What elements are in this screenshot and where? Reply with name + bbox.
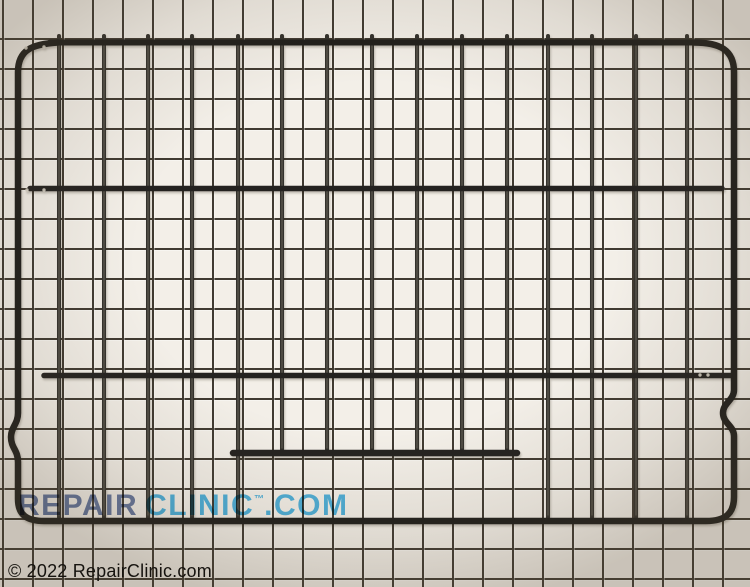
watermark-clinic-text: CLINIC [145,489,254,522]
rack-rivets [24,45,709,376]
watermark-com-text: .COM [264,489,348,522]
rack-crossbars [30,43,733,454]
watermark-repair-text: REPAIR [18,489,138,522]
product-photo: REPAIRCLINIC™.COM © 2022 RepairClinic.co… [0,0,750,587]
rack-wires [59,36,687,519]
watermark-trademark-symbol: ™ [254,494,264,505]
copyright-text: © 2022 RepairClinic.com [8,561,212,582]
repairclinic-watermark: REPAIRCLINIC™.COM [18,491,348,521]
